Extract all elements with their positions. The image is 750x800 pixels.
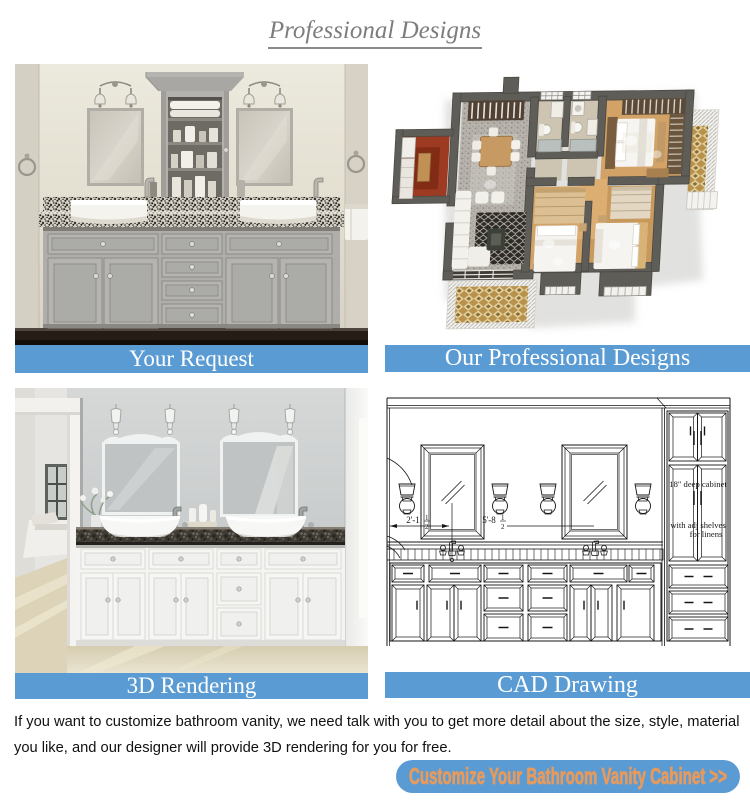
svg-text:Customize Your Bathroom Vanity: Customize Your Bathroom Vanity Cabinet >… xyxy=(409,763,727,789)
svg-text:2: 2 xyxy=(425,523,429,531)
svg-text:for linens: for linens xyxy=(690,529,723,539)
svg-text:5'-8: 5'-8 xyxy=(482,515,496,525)
svg-text:2: 2 xyxy=(501,523,505,531)
svg-text:18" deep cabinet: 18" deep cabinet xyxy=(669,479,727,489)
svg-text:2'-1: 2'-1 xyxy=(406,515,420,525)
